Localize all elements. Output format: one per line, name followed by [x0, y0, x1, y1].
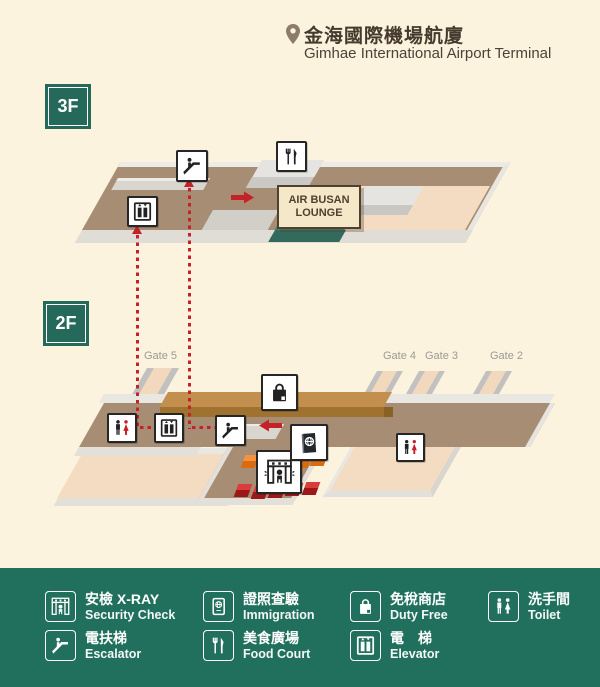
legend-label-zh: 證照查驗: [243, 591, 315, 608]
airport-terminal-map: 金海國際機場航廈 Gimhae International Airport Te…: [0, 0, 600, 687]
legend-label-zh: 美食廣場: [243, 630, 310, 647]
food-court-icon: [203, 630, 234, 661]
floor-badge-frame: [46, 304, 86, 343]
legend-item-food-court: 美食廣場 Food Court: [203, 630, 310, 662]
legend-label-en: Security Check: [85, 608, 175, 623]
lounge-block-front: [268, 230, 346, 242]
route-line-elevator: [136, 235, 139, 429]
food-court-icon: [276, 141, 307, 172]
legend-item-duty-free: 免稅商店 Duty Free: [350, 591, 448, 623]
page-title-zh: 金海國際機場航廈: [304, 21, 464, 48]
legend-label-zh: 免稅商店: [390, 591, 448, 608]
immigration-icon: [203, 591, 234, 622]
legend-item-text: 美食廣場 Food Court: [243, 630, 310, 662]
legend-item-text: 電 梯 Elevator: [390, 630, 439, 662]
elevator-icon: [154, 413, 184, 443]
gate-2-label: Gate 2: [490, 350, 523, 362]
elevator-icon: [350, 630, 381, 661]
gate-5-label: Gate 5: [144, 350, 177, 362]
elevator-icon: [127, 196, 158, 227]
legend-label-zh: 電扶梯: [85, 630, 141, 647]
lounge-label-line1: AIR BUSAN: [288, 194, 349, 207]
legend-label-zh: 安檢 X-RAY: [85, 591, 175, 608]
flow-arrow-left-icon: [258, 419, 282, 437]
queue-barrier-block: [302, 482, 321, 495]
legend-item-immigration: 證照查驗 Immigration: [203, 591, 315, 623]
legend-item-text: 洗手間 Toilet: [528, 591, 570, 623]
gate-3-label: Gate 3: [425, 350, 458, 362]
air-busan-lounge-label: AIR BUSAN LOUNGE: [277, 185, 361, 229]
immigration-icon: [290, 424, 328, 461]
legend-item-elevator: 電 梯 Elevator: [350, 630, 439, 662]
floor-3f-gray-block-top: [355, 186, 424, 205]
floor-badge-3f: 3F: [45, 84, 91, 129]
toilet-icon: [488, 591, 519, 622]
legend-label-en: Food Court: [243, 647, 310, 662]
legend-label-zh: 電 梯: [390, 630, 439, 647]
route-line-escalator: [188, 188, 191, 429]
escalator-icon: [176, 150, 208, 182]
legend-panel: 安檢 X-RAY Security Check 證照查驗 Immigration: [0, 568, 600, 687]
gate-2-bridge: [475, 371, 520, 395]
legend-item-text: 證照查驗 Immigration: [243, 591, 315, 623]
room-floor: [323, 445, 462, 497]
toilet-icon: [396, 433, 425, 462]
location-pin-icon: [286, 24, 300, 49]
legend-item-text: 電扶梯 Escalator: [85, 630, 141, 662]
page-title-en: Gimhae International Airport Terminal: [304, 45, 551, 62]
legend-label-zh: 洗手間: [528, 591, 570, 608]
duty-free-bar-end: [384, 407, 393, 417]
flow-arrow-right-icon: [231, 191, 255, 209]
floor-badge-frame: [48, 87, 88, 126]
legend-label-en: Duty Free: [390, 608, 448, 623]
toilet-icon: [107, 413, 137, 443]
legend-item-escalator: 電扶梯 Escalator: [45, 630, 141, 662]
legend-item-text: 免稅商店 Duty Free: [390, 591, 448, 623]
escalator-icon: [215, 415, 246, 446]
legend-item-text: 安檢 X-RAY Security Check: [85, 591, 175, 623]
concourse-front-face: [74, 447, 201, 456]
lounge-label-line2: LOUNGE: [295, 207, 342, 220]
legend-label-en: Escalator: [85, 647, 141, 662]
legend-item-security-check: 安檢 X-RAY Security Check: [45, 591, 175, 623]
legend-item-toilet: 洗手間 Toilet: [488, 591, 570, 623]
legend-label-en: Elevator: [390, 647, 439, 662]
duty-free-icon: [350, 591, 381, 622]
gate-4-label: Gate 4: [383, 350, 416, 362]
legend-label-en: Toilet: [528, 608, 570, 623]
legend-label-en: Immigration: [243, 608, 315, 623]
security-check-icon: [45, 591, 76, 622]
escalator-icon: [45, 630, 76, 661]
route-line-escalator-horizontal: [192, 426, 217, 429]
floor-3f-recess: [202, 210, 279, 230]
gate-3-bridge: [408, 371, 453, 395]
floor-badge-2f: 2F: [43, 301, 89, 346]
duty-free-icon: [261, 374, 298, 411]
